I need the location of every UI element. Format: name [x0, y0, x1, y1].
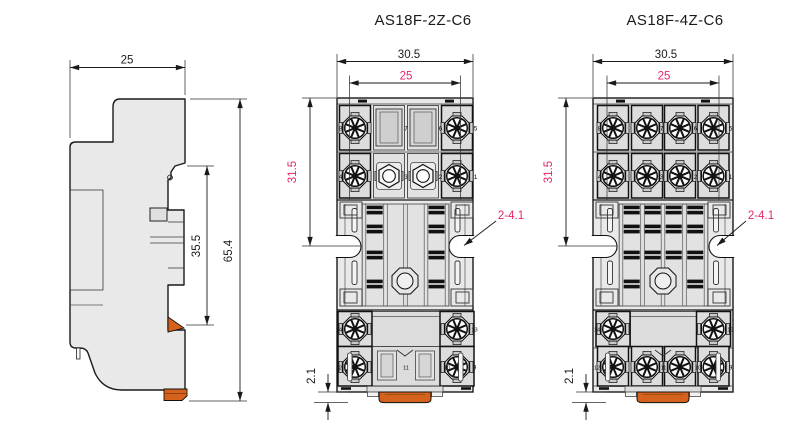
terminal-band-bottom-2z [338, 312, 474, 390]
drawing-page: 25 35.5 65.4 AS18F-2Z-C6 [0, 0, 800, 425]
model-title-4z: AS18F-4Z-C6 [627, 12, 724, 29]
svg-text:11: 11 [661, 366, 667, 372]
svg-text:11: 11 [403, 366, 409, 372]
center-boss [392, 268, 418, 294]
side-body-outline [70, 99, 185, 390]
svg-text:9: 9 [729, 365, 733, 372]
hex-nut-terminal [409, 163, 437, 190]
side-view: 25 35.5 65.4 [70, 55, 247, 402]
terminal-band-bottom-4z [596, 312, 731, 390]
front-view-2z: AS18F-2Z-C6 [287, 12, 524, 420]
svg-text:5: 5 [474, 126, 478, 133]
svg-text:1: 1 [729, 174, 733, 181]
dim-label-2z-mount-holes: 2-4.1 [498, 210, 524, 222]
svg-text:7: 7 [660, 126, 664, 133]
svg-text:10: 10 [695, 366, 701, 372]
hex-nut-terminal [375, 163, 403, 190]
dim-label-2z-pitch: 25 [400, 71, 413, 83]
svg-text:12: 12 [336, 366, 342, 372]
dim-label-4z-pitch: 25 [658, 71, 671, 83]
svg-text:14: 14 [594, 328, 600, 334]
svg-text:10: 10 [444, 366, 450, 372]
svg-text:2: 2 [439, 174, 443, 181]
front-view-4z: AS18F-4Z-C6 [543, 12, 774, 420]
svg-text:14: 14 [336, 328, 342, 334]
din-clip-4z [625, 386, 701, 402]
svg-text:3: 3 [660, 174, 664, 181]
svg-text:2: 2 [694, 174, 698, 181]
dim-label-2z-mount-height: 31.5 [287, 161, 299, 183]
dim-label-side-width: 25 [121, 55, 134, 67]
svg-text:9: 9 [473, 365, 477, 372]
dim-side-rail-height: 35.5 [186, 166, 214, 325]
svg-text:4: 4 [339, 174, 343, 181]
dim-label-side-total-height: 65.4 [223, 239, 235, 262]
svg-text:4: 4 [598, 174, 602, 181]
model-title-2z: AS18F-2Z-C6 [375, 12, 472, 29]
svg-text:13: 13 [727, 328, 733, 334]
dim-4z-pitch: 25 [607, 71, 719, 84]
svg-text:1: 1 [474, 174, 478, 181]
svg-text:6: 6 [439, 126, 443, 133]
svg-text:3: 3 [404, 174, 408, 181]
din-clip-bottom [164, 389, 187, 401]
svg-text:6: 6 [694, 126, 698, 133]
center-boss [650, 268, 676, 294]
dim-label-4z-overall-width: 30.5 [655, 49, 677, 61]
svg-text:13: 13 [471, 328, 477, 334]
dim-label-4z-mount-holes: 2-4.1 [748, 210, 774, 222]
svg-text:5: 5 [729, 126, 733, 133]
dim-label-side-rail-height: 35.5 [191, 235, 203, 257]
svg-text:7: 7 [404, 126, 408, 133]
dim-label-2z-clip-drop: 2.1 [306, 368, 318, 384]
dim-label-4z-clip-drop: 2.1 [564, 368, 576, 384]
bottom-pin [77, 348, 81, 359]
din-clip-2z [367, 386, 443, 402]
dim-label-2z-overall-width: 30.5 [398, 49, 420, 61]
dim-label-4z-mount-height: 31.5 [543, 161, 555, 183]
svg-text:12: 12 [594, 366, 600, 372]
svg-text:8: 8 [339, 126, 343, 133]
dim-2z-pitch: 25 [350, 71, 461, 84]
svg-text:8: 8 [598, 126, 602, 133]
technical-drawing-canvas: 25 35.5 65.4 AS18F-2Z-C6 [0, 0, 800, 425]
